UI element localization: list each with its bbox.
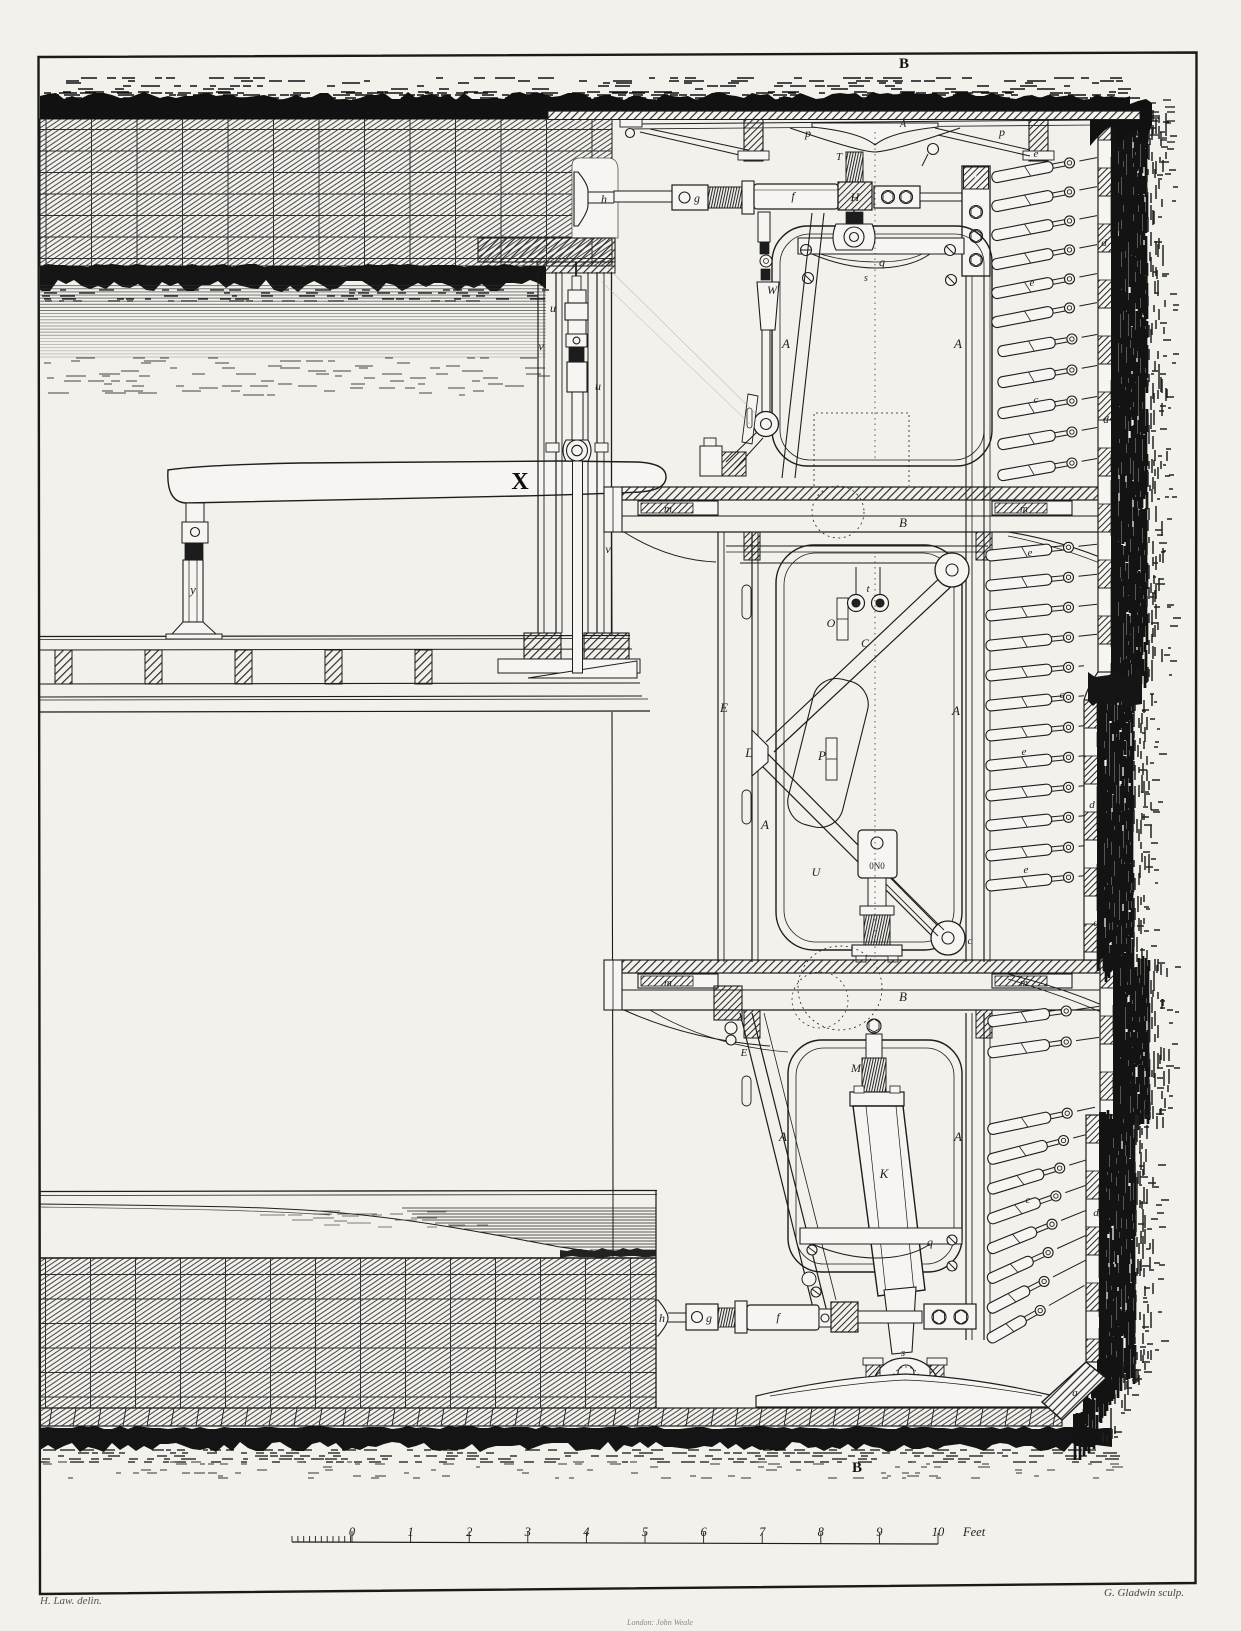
svg-text:c: c bbox=[968, 935, 973, 947]
svg-text:c: c bbox=[1026, 1194, 1031, 1206]
svg-text:s: s bbox=[901, 1347, 905, 1359]
svg-text:E: E bbox=[719, 700, 728, 715]
svg-text:q: q bbox=[927, 1235, 933, 1249]
svg-text:A: A bbox=[951, 703, 960, 718]
svg-text:d: d bbox=[1089, 799, 1095, 811]
svg-text:g: g bbox=[694, 191, 700, 205]
svg-text:m: m bbox=[1020, 503, 1028, 515]
svg-text:h: h bbox=[601, 192, 607, 206]
svg-text:u: u bbox=[595, 379, 601, 393]
svg-text:7: 7 bbox=[759, 1525, 766, 1539]
svg-text:h: h bbox=[659, 1311, 665, 1325]
svg-text:e: e bbox=[1030, 277, 1035, 289]
svg-text:p: p bbox=[804, 126, 811, 140]
svg-text:e: e bbox=[1022, 746, 1027, 758]
svg-text:4: 4 bbox=[583, 1525, 589, 1539]
svg-text:A: A bbox=[781, 336, 790, 351]
svg-text:v: v bbox=[605, 542, 611, 556]
svg-text:p: p bbox=[998, 125, 1005, 139]
svg-text:d: d bbox=[1103, 414, 1109, 426]
svg-text:u: u bbox=[550, 301, 556, 315]
svg-text:H: H bbox=[850, 190, 861, 204]
svg-text:T: T bbox=[836, 151, 843, 163]
svg-text:e: e bbox=[1034, 148, 1039, 160]
svg-text:A: A bbox=[899, 119, 907, 130]
svg-text:c: c bbox=[1060, 689, 1065, 701]
svg-text:y: y bbox=[188, 582, 196, 597]
svg-text:e: e bbox=[1028, 547, 1033, 559]
svg-text:s: s bbox=[864, 273, 868, 284]
svg-text:5: 5 bbox=[642, 1525, 648, 1539]
svg-text:X: X bbox=[511, 469, 529, 495]
svg-text:g: g bbox=[706, 1311, 712, 1325]
svg-text:c: c bbox=[1034, 394, 1039, 406]
svg-text:6: 6 bbox=[700, 1525, 707, 1539]
svg-text:U: U bbox=[812, 865, 822, 879]
svg-text:1: 1 bbox=[407, 1525, 413, 1539]
svg-text:a: a bbox=[1072, 1387, 1078, 1399]
svg-text:9: 9 bbox=[876, 1525, 883, 1539]
svg-text:W: W bbox=[767, 283, 778, 297]
svg-text:A: A bbox=[760, 817, 769, 832]
svg-text:B: B bbox=[899, 56, 909, 72]
svg-text:M: M bbox=[850, 1061, 862, 1075]
svg-text:Feet: Feet bbox=[962, 1525, 986, 1539]
svg-text:0: 0 bbox=[349, 1525, 356, 1539]
svg-text:B: B bbox=[852, 1460, 862, 1476]
svg-text:d: d bbox=[1093, 1207, 1099, 1219]
svg-text:C: C bbox=[861, 636, 870, 650]
svg-text:A: A bbox=[778, 1129, 787, 1144]
svg-text:2: 2 bbox=[466, 1525, 472, 1539]
svg-text:E: E bbox=[740, 1047, 748, 1059]
svg-text:q: q bbox=[879, 255, 885, 269]
svg-text:3: 3 bbox=[524, 1525, 531, 1539]
svg-text:d: d bbox=[1101, 237, 1107, 249]
svg-text:P: P bbox=[817, 748, 826, 763]
svg-text:e: e bbox=[1024, 864, 1029, 876]
svg-text:K: K bbox=[879, 1166, 890, 1181]
svg-text:A: A bbox=[953, 336, 962, 351]
svg-text:B: B bbox=[899, 989, 907, 1004]
svg-text:O: O bbox=[827, 616, 836, 630]
svg-text:m: m bbox=[664, 977, 672, 989]
svg-text:0N0: 0N0 bbox=[869, 861, 885, 871]
svg-text:v: v bbox=[538, 339, 544, 353]
svg-text:10: 10 bbox=[932, 1525, 945, 1539]
svg-text:London: John Weale: London: John Weale bbox=[626, 1618, 693, 1626]
svg-text:A: A bbox=[953, 1129, 962, 1144]
svg-text:8: 8 bbox=[818, 1525, 825, 1539]
svg-text:H. Law. delin.: H. Law. delin. bbox=[39, 1595, 102, 1607]
svg-text:m: m bbox=[664, 503, 672, 515]
svg-text:B: B bbox=[899, 515, 907, 530]
svg-text:G. Gladwin sculp.: G. Gladwin sculp. bbox=[1104, 1587, 1184, 1599]
